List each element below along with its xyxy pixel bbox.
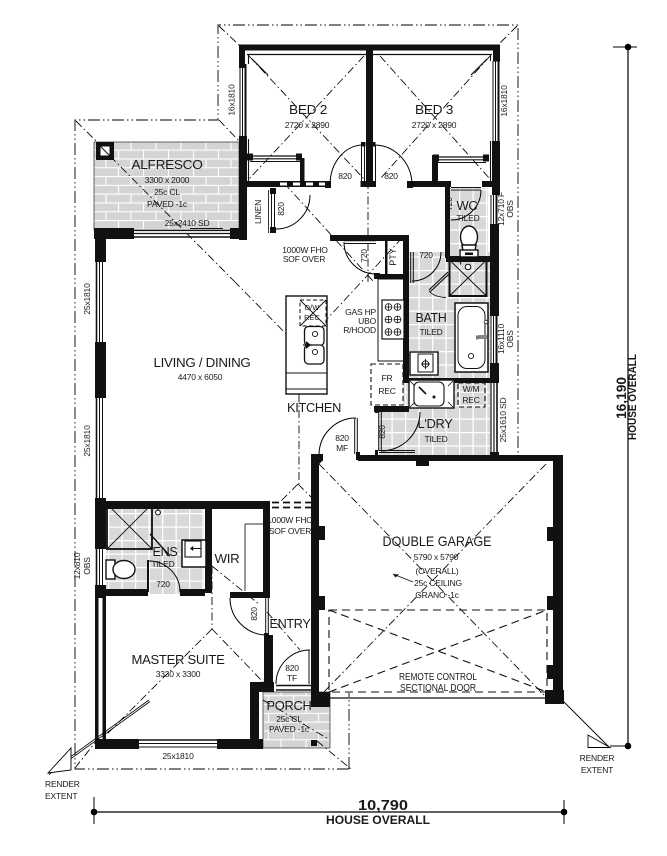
svg-text:BATH: BATH [416, 310, 447, 325]
svg-text:ENTRY: ENTRY [270, 616, 312, 631]
svg-text:2720 x 2890: 2720 x 2890 [285, 120, 330, 130]
svg-text:HOUSE OVERALL: HOUSE OVERALL [627, 354, 639, 440]
svg-text:FR: FR [382, 373, 393, 383]
svg-text:820: 820 [276, 202, 286, 216]
svg-text:SOF OVER: SOF OVER [283, 254, 325, 264]
svg-text:SECTIONAL DOOR: SECTIONAL DOOR [400, 683, 476, 694]
svg-text:12x810: 12x810 [72, 552, 82, 579]
svg-text:820: 820 [285, 663, 299, 673]
svg-text:SOF OVER: SOF OVER [269, 526, 311, 536]
svg-text:WC: WC [457, 198, 478, 213]
svg-text:RENDER: RENDER [45, 779, 80, 789]
svg-text:REMOTE CONTROL: REMOTE CONTROL [399, 672, 477, 683]
svg-text:D/W: D/W [305, 303, 321, 312]
svg-text:TF: TF [287, 673, 297, 683]
svg-text:OBS: OBS [82, 557, 92, 575]
svg-text:MASTER SUITE: MASTER SUITE [132, 652, 226, 667]
svg-text:TILED: TILED [419, 327, 442, 337]
svg-text:L'DRY: L'DRY [418, 416, 454, 431]
svg-text:25c CL: 25c CL [154, 187, 180, 197]
svg-text:EXTENT: EXTENT [581, 765, 613, 775]
svg-text:2720 x 2890: 2720 x 2890 [412, 120, 457, 130]
svg-text:OBS: OBS [505, 330, 515, 348]
svg-text:720: 720 [359, 249, 369, 263]
svg-text:R/HOOD: R/HOOD [343, 325, 376, 335]
svg-text:REC: REC [304, 313, 320, 322]
svg-text:LINEN: LINEN [253, 200, 263, 224]
svg-text:ENS: ENS [153, 544, 179, 559]
svg-text:HOUSE OVERALL: HOUSE OVERALL [326, 815, 430, 827]
svg-text:(OVERALL): (OVERALL) [415, 566, 458, 576]
svg-text:REC: REC [378, 386, 395, 396]
svg-text:PTY: PTY [388, 248, 398, 266]
svg-text:25x1610 SD: 25x1610 SD [498, 398, 508, 443]
svg-text:720: 720 [419, 250, 433, 260]
svg-text:820: 820 [249, 607, 259, 621]
svg-text:BED 3: BED 3 [415, 102, 453, 117]
svg-text:ALFRESCO: ALFRESCO [132, 157, 203, 172]
svg-text:TILED: TILED [151, 559, 174, 569]
svg-text:W/M: W/M [463, 384, 480, 394]
svg-text:5790 x 5790: 5790 x 5790 [414, 552, 459, 562]
svg-text:820: 820 [338, 171, 352, 181]
svg-text:DOUBLE GARAGE: DOUBLE GARAGE [383, 533, 492, 549]
svg-text:25c CL: 25c CL [276, 714, 302, 724]
svg-text:25x1810: 25x1810 [162, 751, 194, 761]
svg-text:25c CEILING: 25c CEILING [414, 578, 462, 588]
svg-text:3300 x 2000: 3300 x 2000 [145, 175, 190, 185]
svg-text:820: 820 [377, 425, 387, 439]
svg-text:820: 820 [335, 433, 349, 443]
svg-text:WIR: WIR [215, 551, 240, 566]
svg-text:25x2410 SD: 25x2410 SD [165, 218, 210, 228]
svg-text:PAVED -1c: PAVED -1c [147, 199, 188, 209]
svg-text:16x1810: 16x1810 [227, 84, 237, 116]
svg-text:1000W FHO: 1000W FHO [267, 515, 313, 525]
svg-text:LIVING / DINING: LIVING / DINING [154, 355, 251, 370]
svg-text:TILED: TILED [424, 434, 447, 444]
svg-text:OBS: OBS [505, 200, 515, 218]
svg-text:PORCH: PORCH [267, 698, 312, 713]
svg-text:RENDER: RENDER [580, 753, 615, 763]
svg-text:16x1810: 16x1810 [499, 85, 509, 117]
svg-text:25x1810: 25x1810 [82, 283, 92, 315]
svg-text:REC: REC [462, 395, 479, 405]
svg-text:820: 820 [384, 171, 398, 181]
svg-text:25x1810: 25x1810 [82, 425, 92, 457]
svg-text:GRANO -1c: GRANO -1c [415, 590, 459, 600]
svg-text:TILED: TILED [456, 213, 479, 223]
svg-text:720: 720 [444, 197, 454, 211]
svg-text:4470 x 6050: 4470 x 6050 [178, 372, 223, 382]
svg-text:PAVED -1c: PAVED -1c [269, 724, 310, 734]
svg-text:BED 2: BED 2 [289, 102, 327, 117]
svg-text:720: 720 [156, 579, 170, 589]
svg-text:3330 x 3300: 3330 x 3300 [156, 669, 201, 679]
svg-text:10,790: 10,790 [358, 797, 408, 814]
svg-text:KITCHEN: KITCHEN [287, 400, 341, 415]
svg-text:MF: MF [336, 443, 348, 453]
svg-text:EXTENT: EXTENT [45, 791, 77, 801]
